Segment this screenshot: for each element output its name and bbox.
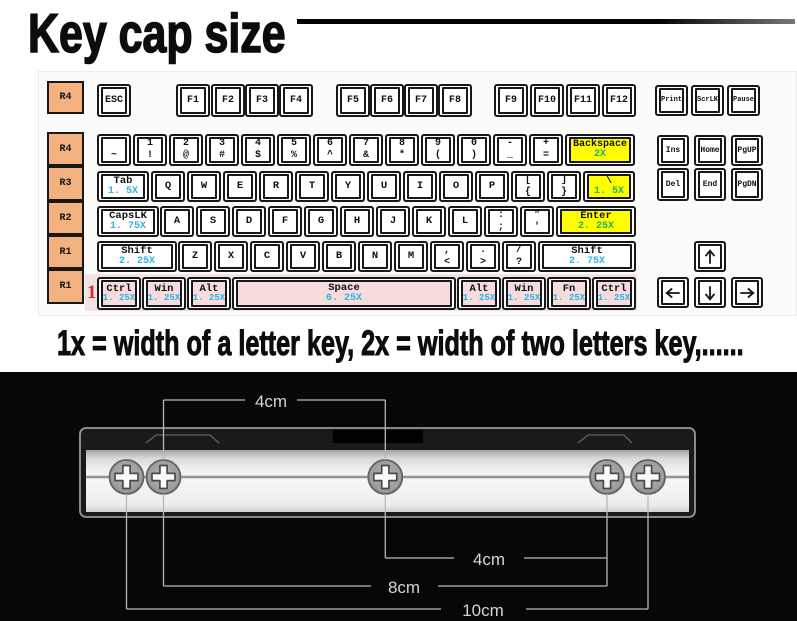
svg-text:8cm: 8cm xyxy=(388,578,420,597)
svg-text:10cm: 10cm xyxy=(462,601,504,620)
svg-text:4cm: 4cm xyxy=(255,392,287,411)
svg-text:4cm: 4cm xyxy=(473,550,505,569)
